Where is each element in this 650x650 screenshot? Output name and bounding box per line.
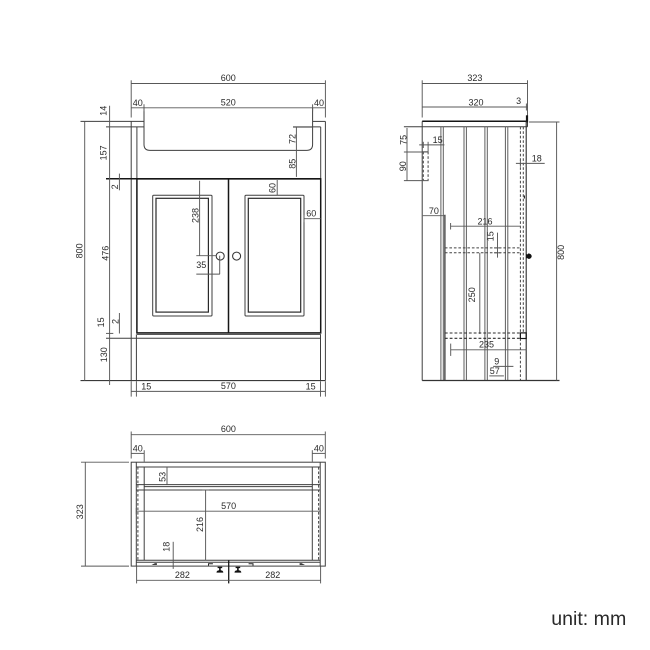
svg-text:35: 35 xyxy=(196,260,206,270)
svg-text:3: 3 xyxy=(516,96,521,106)
svg-text:323: 323 xyxy=(75,504,85,519)
svg-text:18: 18 xyxy=(532,154,542,164)
svg-text:250: 250 xyxy=(467,287,477,302)
svg-text:235: 235 xyxy=(479,339,494,349)
svg-text:216: 216 xyxy=(477,217,492,227)
svg-text:15: 15 xyxy=(141,381,151,391)
svg-text:15: 15 xyxy=(306,381,316,391)
svg-text:282: 282 xyxy=(175,570,190,580)
svg-text:57: 57 xyxy=(490,366,500,376)
svg-text:unit: mm: unit: mm xyxy=(551,608,626,630)
svg-text:18: 18 xyxy=(162,542,172,552)
svg-text:600: 600 xyxy=(221,73,236,83)
svg-text:238: 238 xyxy=(190,208,200,223)
svg-text:75: 75 xyxy=(399,135,409,145)
svg-text:2: 2 xyxy=(110,184,120,189)
svg-text:15: 15 xyxy=(433,135,443,145)
svg-text:40: 40 xyxy=(133,98,143,108)
svg-text:70: 70 xyxy=(429,206,439,216)
svg-text:282: 282 xyxy=(265,570,280,580)
svg-text:323: 323 xyxy=(467,73,482,83)
svg-text:53: 53 xyxy=(157,472,167,482)
svg-text:15: 15 xyxy=(96,317,106,327)
svg-text:72: 72 xyxy=(288,134,298,144)
svg-text:157: 157 xyxy=(99,145,109,160)
svg-text:40: 40 xyxy=(133,443,143,453)
svg-text:216: 216 xyxy=(195,517,205,532)
svg-text:520: 520 xyxy=(221,98,236,108)
svg-text:40: 40 xyxy=(314,443,324,453)
svg-text:2: 2 xyxy=(111,319,121,324)
svg-text:476: 476 xyxy=(101,246,111,261)
svg-text:570: 570 xyxy=(221,381,236,391)
svg-text:800: 800 xyxy=(74,243,84,258)
svg-text:800: 800 xyxy=(556,245,566,260)
svg-text:40: 40 xyxy=(314,98,324,108)
svg-text:570: 570 xyxy=(221,501,236,511)
svg-text:14: 14 xyxy=(99,106,109,116)
svg-text:60: 60 xyxy=(306,209,316,219)
svg-text:320: 320 xyxy=(468,97,483,107)
svg-text:90: 90 xyxy=(398,161,408,171)
svg-text:130: 130 xyxy=(99,347,109,362)
svg-text:9: 9 xyxy=(494,357,499,367)
svg-text:600: 600 xyxy=(221,424,236,434)
svg-text:85: 85 xyxy=(288,159,298,169)
svg-text:60: 60 xyxy=(268,183,278,193)
svg-text:15: 15 xyxy=(486,231,496,241)
